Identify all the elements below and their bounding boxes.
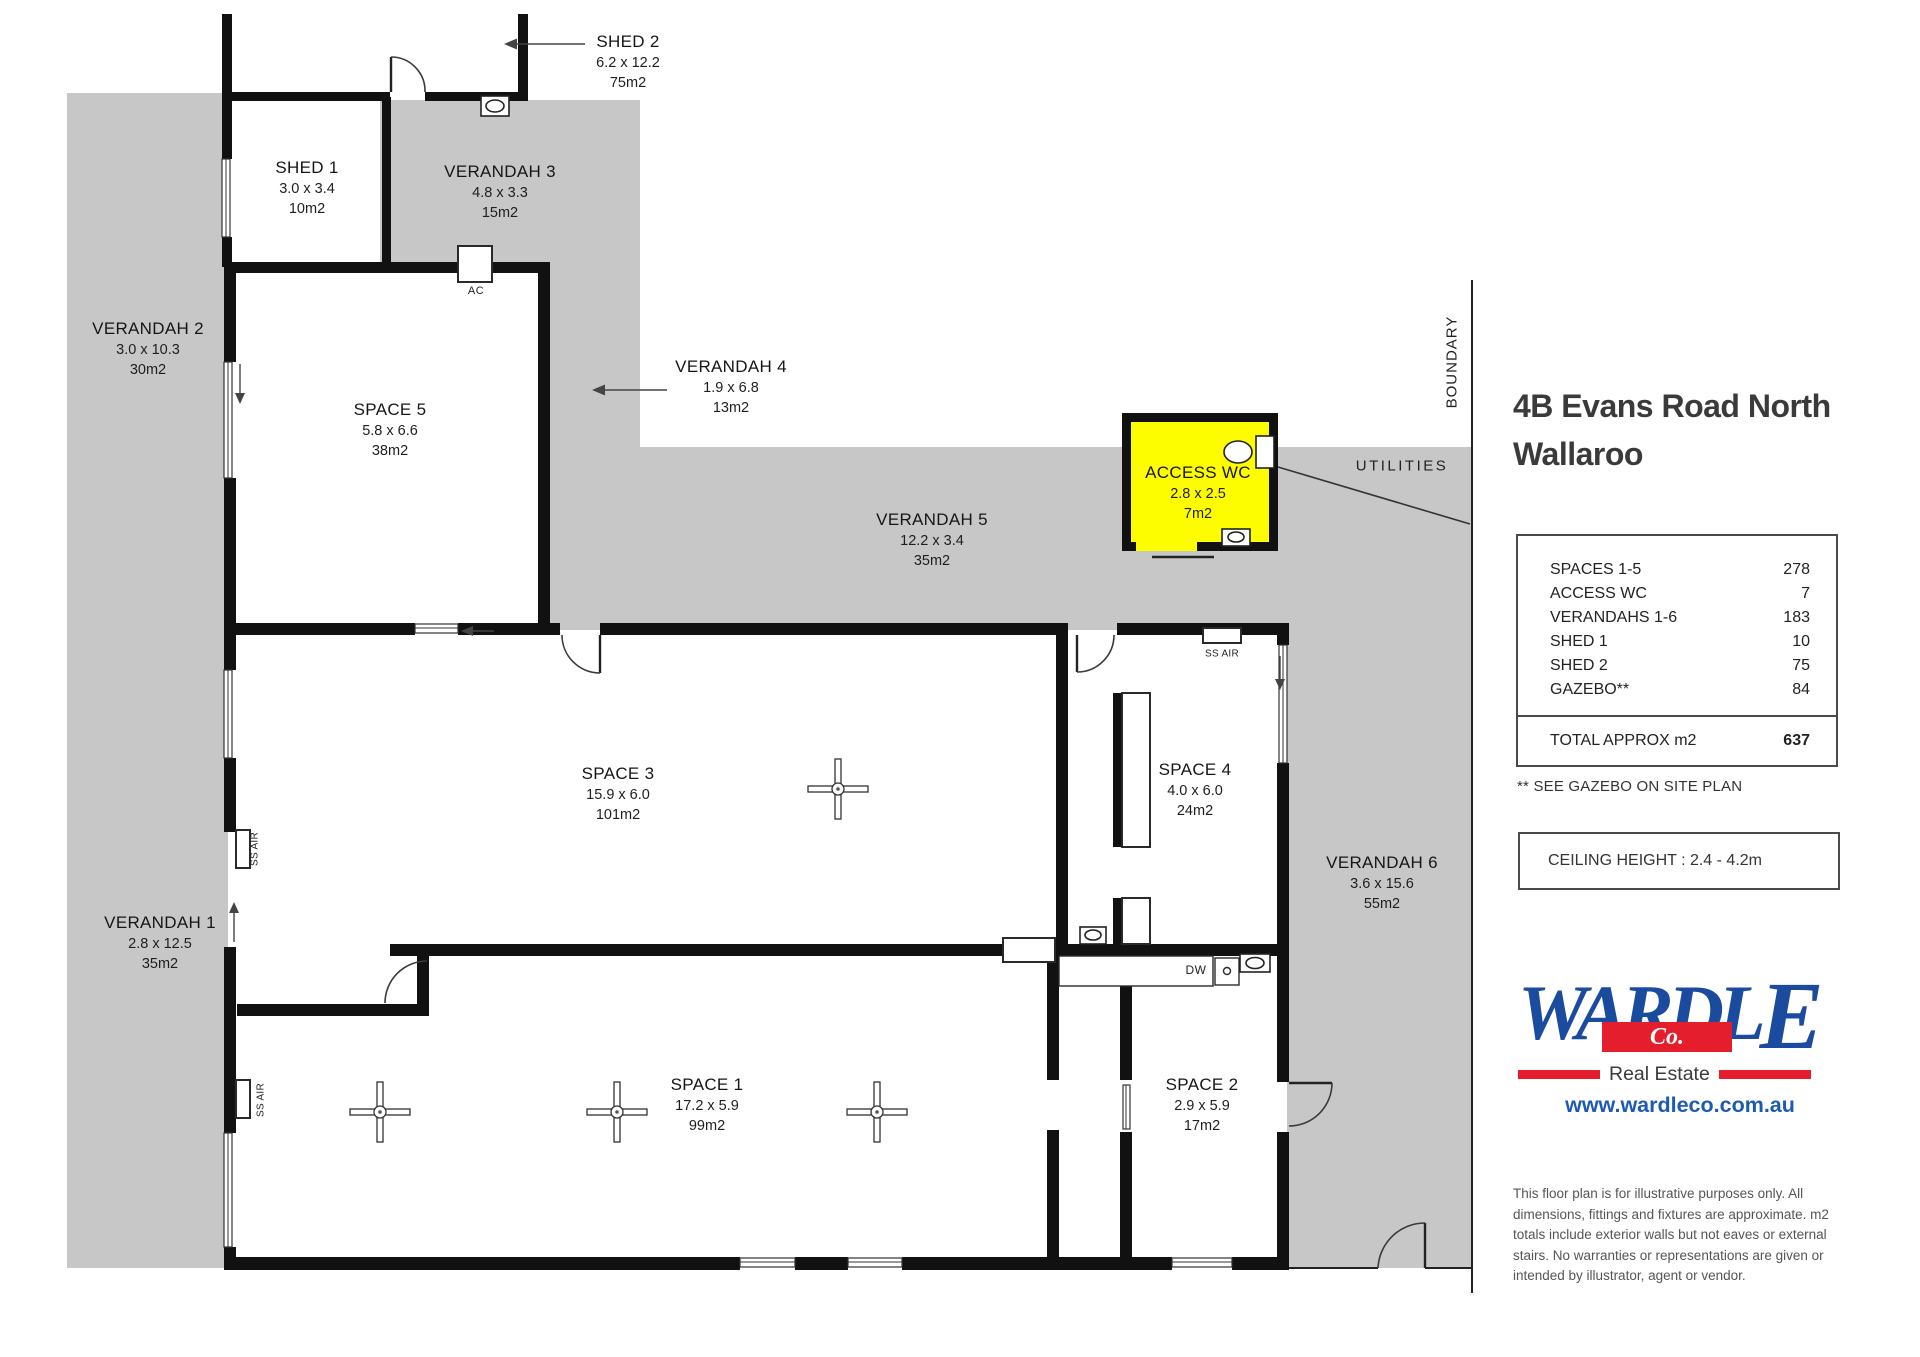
ac-unit-icon xyxy=(458,246,492,282)
room-label-verandah-5: VERANDAH 512.2 x 3.435m2 xyxy=(876,509,988,571)
sink-icon xyxy=(1085,930,1101,940)
area-table: SPACES 1-5278ACCESS WC7VERANDAHS 1-6183S… xyxy=(1518,536,1836,715)
room-label-verandah-3: VERANDAH 34.8 x 3.315m2 xyxy=(444,161,556,223)
annotation-ss-air-space4: SS AIR xyxy=(1205,649,1239,660)
toilet-icon xyxy=(1224,441,1252,463)
ss-air-unit-icon xyxy=(236,1080,250,1118)
gazebo-note: ** SEE GAZEBO ON SITE PLAN xyxy=(1517,778,1742,795)
ceiling-height-box: CEILING HEIGHT : 2.4 - 4.2m xyxy=(1518,832,1840,890)
area-table-row: SPACES 1-5278 xyxy=(1518,558,1836,582)
area-total-row: TOTAL APPROX m2 637 xyxy=(1518,715,1836,765)
logo-tagline: Real Estate xyxy=(1609,1063,1710,1086)
area-summary-box: SPACES 1-5278ACCESS WC7VERANDAHS 1-6183S… xyxy=(1516,534,1838,767)
floor-plan-page: SHED 26.2 x 12.275m2SHED 13.0 x 3.410m2V… xyxy=(0,0,1920,1357)
annotation-boundary: BOUNDARY xyxy=(1444,316,1461,409)
ceiling-fan-icon xyxy=(350,1082,410,1142)
area-table-row: SHED 110 xyxy=(1518,630,1836,654)
total-value: 637 xyxy=(1783,717,1810,765)
annotation-utilities: UTILITIES xyxy=(1356,458,1449,475)
ss-air-unit-icon xyxy=(1203,628,1241,643)
wardle-logo-wordmark: WARDLE Co. xyxy=(1518,972,1842,1058)
logo-co-badge: Co. xyxy=(1602,1022,1732,1052)
red-bar-right xyxy=(1719,1070,1811,1079)
ss-air-unit-icon xyxy=(236,830,250,868)
room-label-space-3: SPACE 315.9 x 6.0101m2 xyxy=(582,763,655,825)
hearth-fixture xyxy=(1003,938,1055,962)
room-label-verandah-6: VERANDAH 63.6 x 15.655m2 xyxy=(1326,852,1438,914)
room-label-space-1: SPACE 117.2 x 5.999m2 xyxy=(671,1074,744,1136)
room-label-shed-2: SHED 26.2 x 12.275m2 xyxy=(596,31,660,93)
toilet-icon xyxy=(1256,436,1274,468)
annotation-ss-air-upper: SS AIR xyxy=(250,832,261,866)
red-bar-left xyxy=(1518,1070,1600,1079)
light-fixture-icon xyxy=(486,100,504,112)
room-label-verandah-1: VERANDAH 12.8 x 12.535m2 xyxy=(104,912,216,974)
room-label-verandah-4: VERANDAH 41.9 x 6.813m2 xyxy=(675,356,787,418)
property-address-line1: 4B Evans Road North xyxy=(1513,388,1831,425)
area-table-row: VERANDAHS 1-6183 xyxy=(1518,606,1836,630)
space4-shower xyxy=(1122,898,1150,944)
logo-co-text: Co. xyxy=(1650,1024,1684,1051)
property-address-line2: Wallaroo xyxy=(1513,436,1643,473)
logo-word-last-letter: E xyxy=(1760,962,1824,1069)
annotation-ac-unit: AC xyxy=(468,285,484,297)
room-label-verandah-2: VERANDAH 23.0 x 10.330m2 xyxy=(92,318,204,380)
room-label-access-wc: ACCESS WC2.8 x 2.57m2 xyxy=(1145,462,1251,524)
area-table-row: ACCESS WC7 xyxy=(1518,582,1836,606)
room-label-space-2: SPACE 22.9 x 5.917m2 xyxy=(1166,1074,1239,1136)
wardle-logo: WARDLE Co. Real Estate www.wardleco.com.… xyxy=(1518,972,1842,1118)
annotation-dishwasher: DW xyxy=(1186,963,1207,977)
total-label: TOTAL APPROX m2 xyxy=(1550,717,1696,765)
ceiling-fan-icon xyxy=(847,1082,907,1142)
sink-icon xyxy=(1228,532,1244,542)
disclaimer-text: This floor plan is for illustrative purp… xyxy=(1513,1184,1833,1287)
space4-cupboard xyxy=(1122,693,1150,847)
room-label-space-4: SPACE 44.0 x 6.024m2 xyxy=(1159,759,1232,821)
sink-icon xyxy=(1246,958,1264,969)
ceiling-fan-icon xyxy=(808,759,868,819)
annotation-ss-air-lower: SS AIR xyxy=(256,1083,267,1117)
room-label-shed-1: SHED 13.0 x 3.410m2 xyxy=(275,157,338,219)
area-table-row: SHED 275 xyxy=(1518,654,1836,678)
ceiling-fan-icon xyxy=(587,1082,647,1142)
room-label-space-5: SPACE 55.8 x 6.638m2 xyxy=(354,399,427,461)
ceiling-height-text: CEILING HEIGHT : 2.4 - 4.2m xyxy=(1548,852,1762,870)
dishwasher-icon xyxy=(1215,958,1239,985)
area-table-row: GAZEBO**84 xyxy=(1518,678,1836,702)
website-url: www.wardleco.com.au xyxy=(1518,1093,1842,1118)
